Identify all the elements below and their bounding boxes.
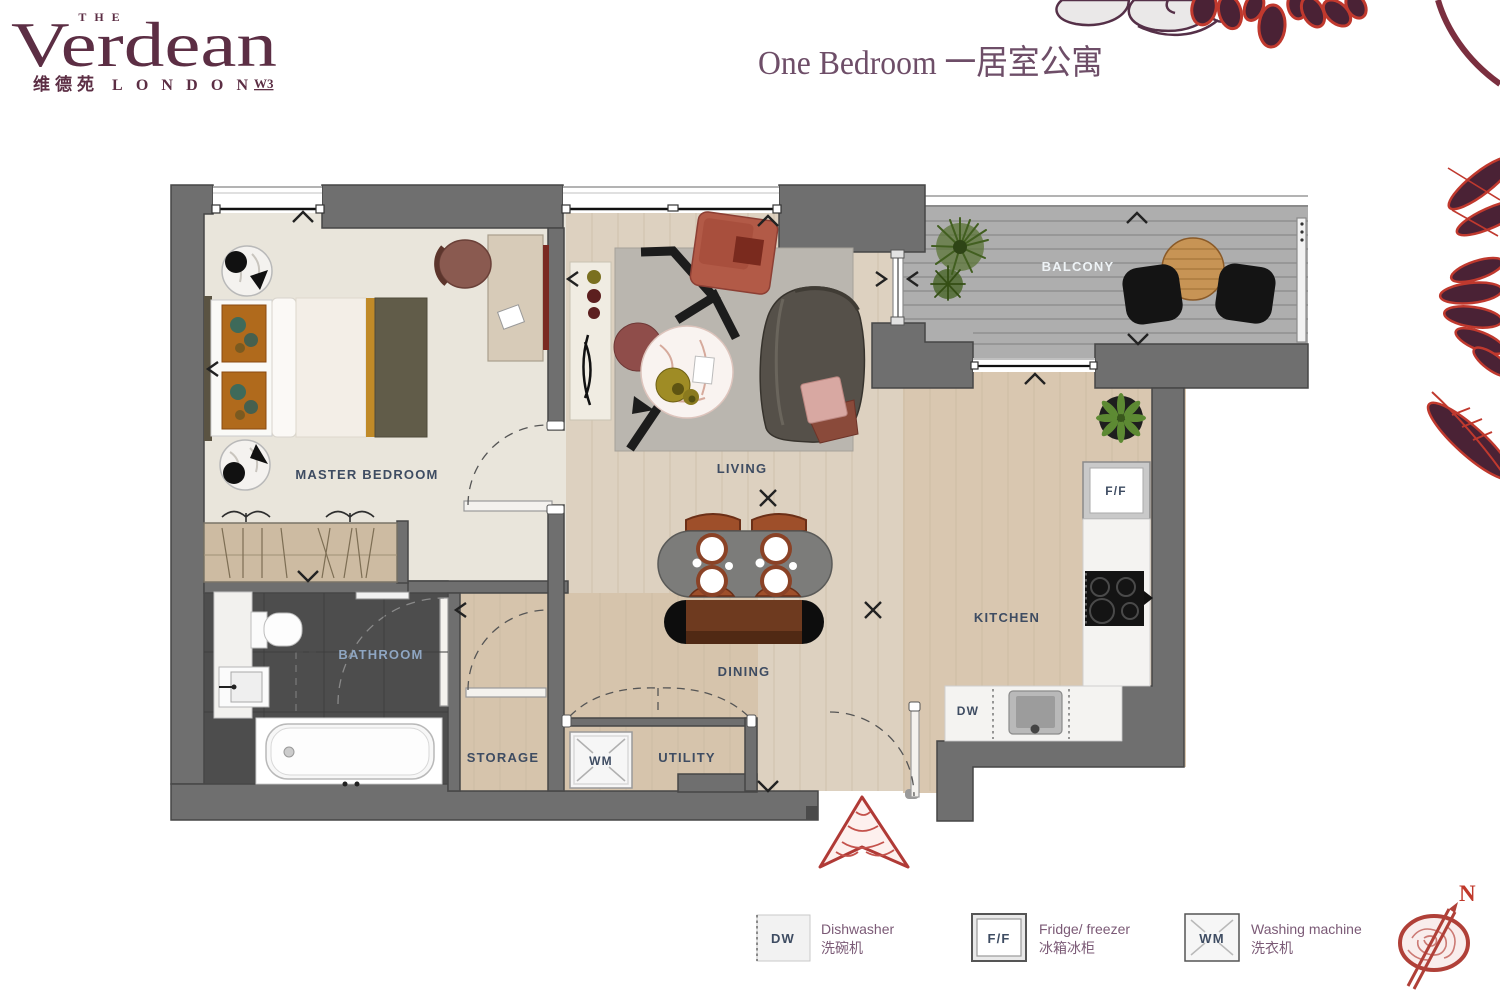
svg-text:WM: WM bbox=[589, 754, 613, 768]
svg-text:DW: DW bbox=[957, 704, 979, 718]
svg-text:N: N bbox=[1459, 881, 1476, 906]
svg-text:DW: DW bbox=[771, 931, 795, 946]
svg-text:F/F: F/F bbox=[987, 931, 1010, 946]
svg-text:洗碗机: 洗碗机 bbox=[821, 940, 863, 956]
svg-text:BALCONY: BALCONY bbox=[1042, 259, 1115, 274]
svg-text:WM: WM bbox=[1199, 931, 1225, 946]
svg-text:KITCHEN: KITCHEN bbox=[974, 610, 1040, 625]
svg-text:LIVING: LIVING bbox=[717, 461, 768, 476]
svg-text:洗衣机: 洗衣机 bbox=[1251, 940, 1293, 956]
svg-text:Verdean: Verdean bbox=[11, 9, 277, 80]
svg-text:STORAGE: STORAGE bbox=[467, 750, 539, 765]
svg-text:Washing machine: Washing machine bbox=[1251, 921, 1362, 937]
svg-text:W3: W3 bbox=[254, 76, 274, 91]
svg-text:UTILITY: UTILITY bbox=[658, 750, 716, 765]
svg-text:Fridge/ freezer: Fridge/ freezer bbox=[1039, 921, 1130, 937]
svg-text:Dishwasher: Dishwasher bbox=[821, 921, 894, 937]
svg-text:F/F: F/F bbox=[1105, 484, 1127, 498]
svg-text:维德苑: 维德苑 bbox=[33, 74, 99, 94]
svg-text:冰箱冰柜: 冰箱冰柜 bbox=[1039, 940, 1095, 956]
svg-text:DINING: DINING bbox=[718, 664, 771, 679]
svg-text:BATHROOM: BATHROOM bbox=[338, 647, 423, 662]
svg-text:One Bedroom 一居室公寓: One Bedroom 一居室公寓 bbox=[758, 44, 1103, 82]
svg-text:MASTER BEDROOM: MASTER BEDROOM bbox=[295, 467, 438, 482]
